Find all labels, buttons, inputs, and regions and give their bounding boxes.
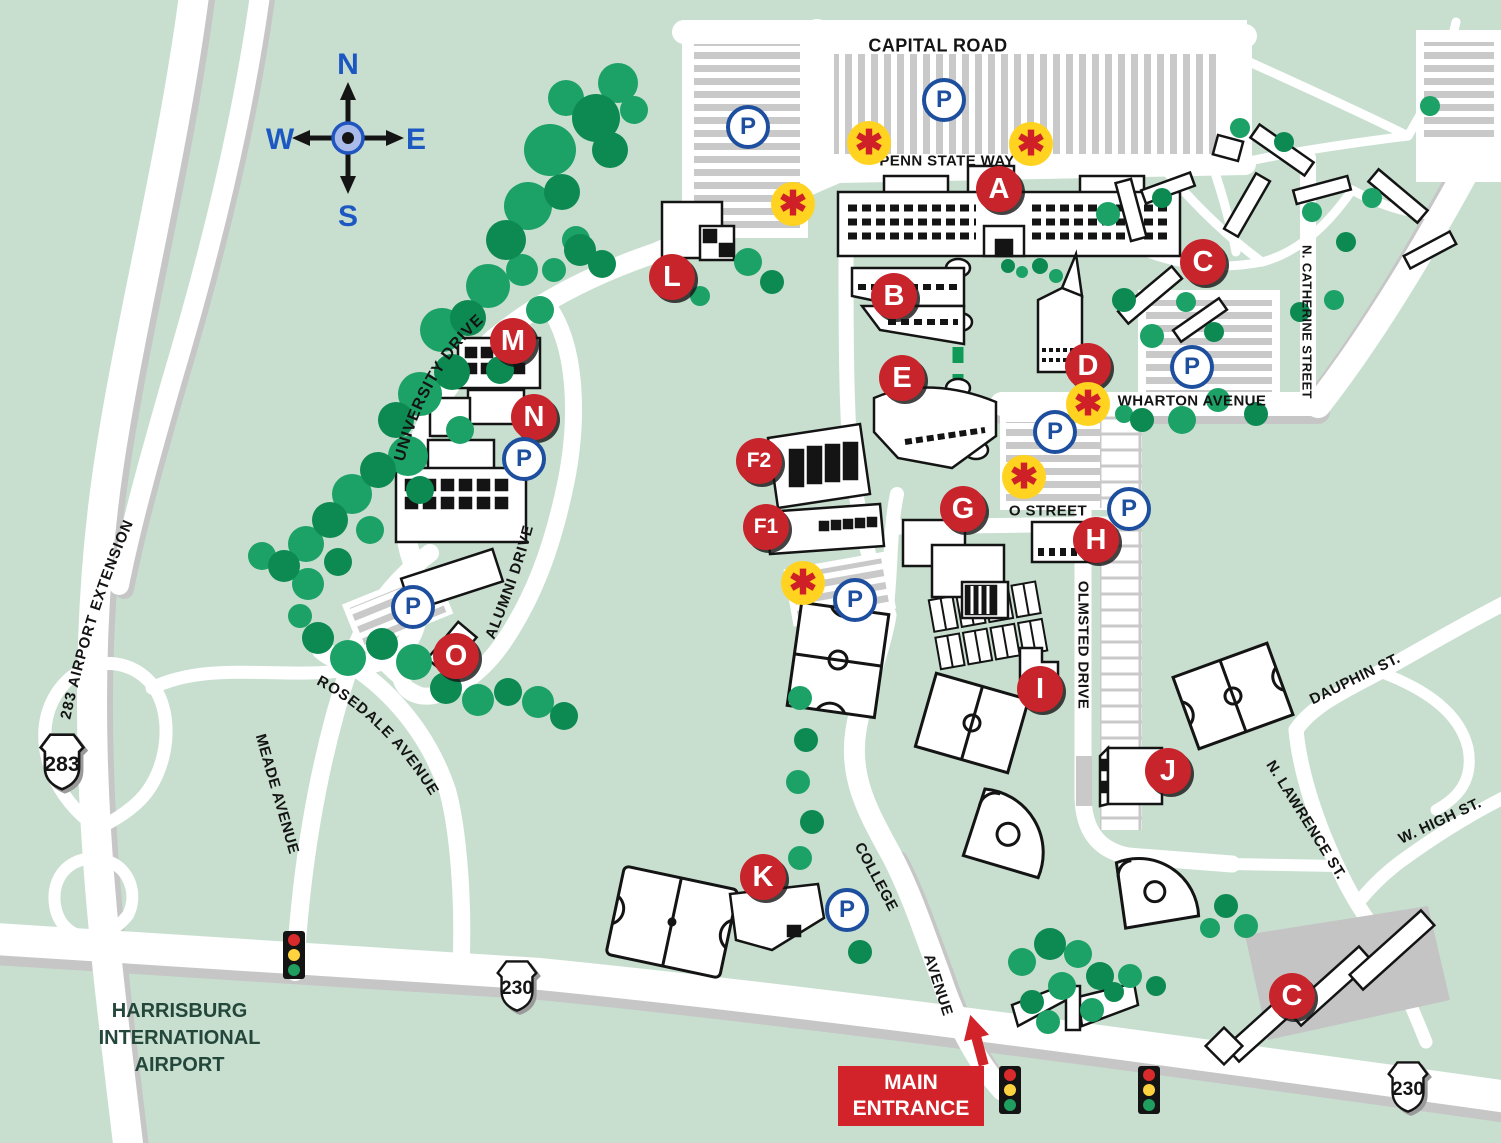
building-K (730, 884, 824, 950)
building-L (662, 202, 734, 260)
main-entrance-line2: ENTRANCE (853, 1096, 970, 1122)
building-B (852, 268, 964, 344)
airport-label-line2: INTERNATIONAL (72, 1025, 287, 1052)
compass-north-label: N (337, 48, 359, 81)
building-G (903, 520, 1008, 618)
building-J (1100, 748, 1162, 806)
map-base-graphics: UNIVERSITY DRIVE ALUMNI DRIVE ROSEDALE A… (0, 0, 1501, 1143)
building-O (427, 622, 476, 674)
airport-label-line3: AIRPORT (72, 1052, 287, 1079)
athletic-fields (606, 582, 1293, 979)
soccer-field (915, 673, 1028, 773)
building-H (1032, 522, 1098, 562)
compass-west-label: W (266, 123, 295, 156)
main-entrance-line1: MAIN (884, 1070, 938, 1096)
main-entrance-sign: MAIN ENTRANCE (838, 1066, 984, 1126)
airport-label-line1: HARRISBURG (72, 998, 287, 1025)
building-F1 (766, 504, 884, 554)
hockey-field (606, 866, 738, 978)
baseball-field (963, 787, 1060, 879)
airport-label: HARRISBURG INTERNATIONAL AIRPORT (72, 998, 287, 1079)
compass-rose: N S W E (266, 48, 426, 233)
building-F2 (768, 424, 870, 508)
soccer-field (1173, 643, 1293, 749)
campus-map: UNIVERSITY DRIVE ALUMNI DRIVE ROSEDALE A… (0, 0, 1501, 1143)
building-I (1020, 648, 1058, 690)
compass-south-label: S (338, 200, 358, 233)
compass-east-label: E (406, 123, 426, 156)
